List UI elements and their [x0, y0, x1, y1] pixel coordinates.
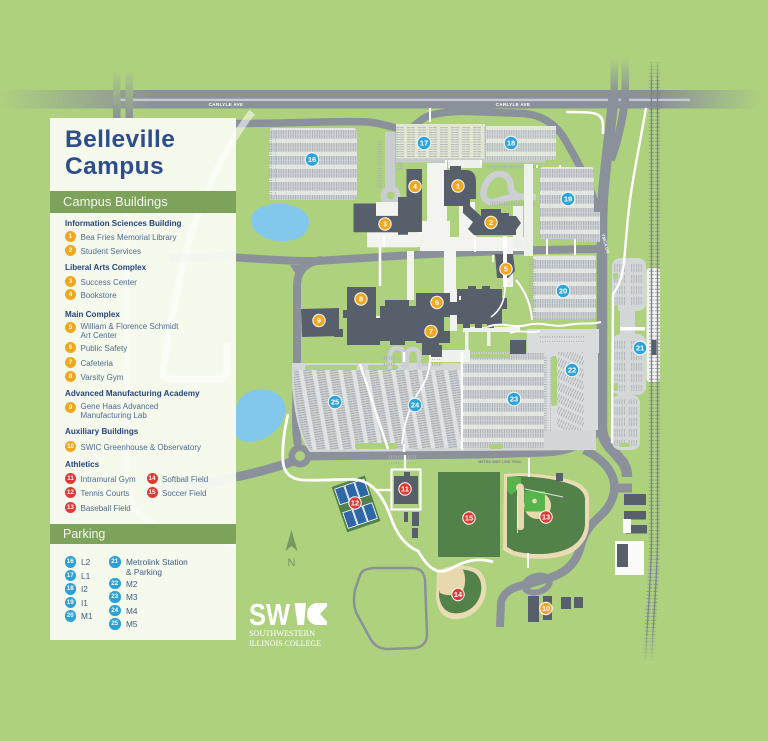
svg-text:SW: SW: [249, 598, 290, 632]
svg-text:25: 25: [331, 398, 339, 407]
svg-text:20: 20: [559, 287, 567, 296]
svg-text:8: 8: [359, 295, 363, 304]
svg-text:11: 11: [401, 485, 409, 494]
svg-text:CARLYLE AVE: CARLYLE AVE: [496, 102, 531, 107]
svg-text:6: 6: [435, 298, 439, 307]
svg-text:23: 23: [510, 395, 518, 404]
svg-text:2: 2: [489, 218, 493, 227]
svg-text:22: 22: [568, 366, 576, 375]
svg-text:METRO BIKE LINK TRAIL: METRO BIKE LINK TRAIL: [478, 460, 522, 464]
svg-text:3: 3: [383, 220, 387, 229]
svg-text:5: 5: [504, 265, 508, 274]
svg-text:CARLYLE AVE: CARLYLE AVE: [209, 102, 244, 107]
svg-text:SOUTHWESTERN: SOUTHWESTERN: [249, 628, 316, 638]
svg-text:7: 7: [429, 327, 433, 336]
svg-text:24: 24: [411, 401, 420, 410]
svg-text:21: 21: [636, 344, 644, 353]
svg-text:1: 1: [456, 182, 460, 191]
svg-text:18: 18: [507, 139, 515, 148]
svg-text:16: 16: [308, 155, 316, 164]
svg-text:15: 15: [465, 514, 473, 523]
svg-text:10: 10: [542, 604, 550, 613]
svg-text:ILLINOIS COLLEGE: ILLINOIS COLLEGE: [249, 638, 321, 648]
svg-text:N: N: [288, 557, 296, 569]
svg-text:12: 12: [351, 499, 359, 508]
svg-text:13: 13: [542, 513, 550, 522]
svg-text:9: 9: [317, 316, 321, 325]
svg-text:17: 17: [420, 139, 428, 148]
svg-text:14: 14: [454, 590, 463, 599]
svg-text:19: 19: [564, 195, 572, 204]
